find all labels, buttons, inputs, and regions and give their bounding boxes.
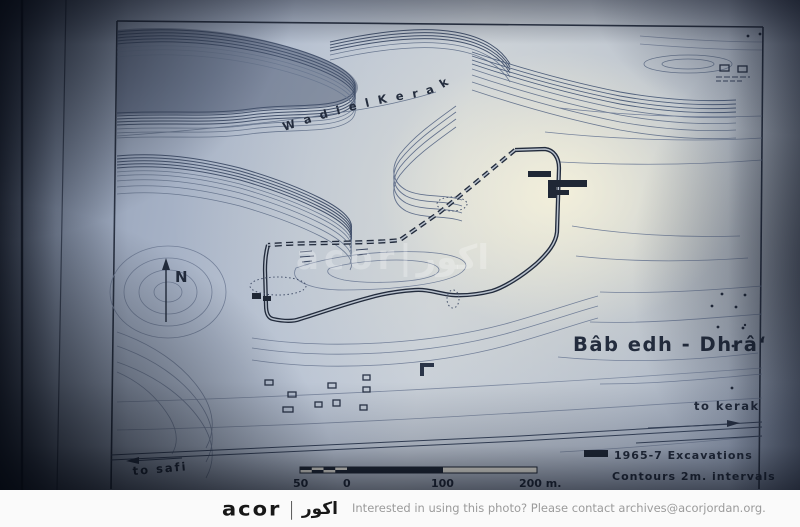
scale-label-100: 100 [431, 477, 454, 490]
map-legend: 1965-7 Excavations Contours 2m. interval… [584, 449, 776, 483]
town-wall [265, 149, 559, 321]
road-label-safi: to safi [132, 459, 188, 478]
legend-excavations-label: 1965-7 Excavations [614, 449, 753, 462]
north-arrow-head-icon [162, 258, 170, 270]
steep-slope-shading [117, 28, 358, 115]
contour-lines [110, 28, 762, 478]
scale-bar: 50 0 100 200 m. [293, 467, 561, 490]
small-dash-notes [716, 77, 750, 81]
scale-label-50: 50 [293, 477, 309, 490]
screenshot: N W a d i e l K e r a k Bâb edh - Dhrâ‘ … [0, 0, 800, 527]
legend-contours-label: Contours 2m. intervals [612, 470, 776, 483]
scale-label-0: 0 [343, 477, 351, 490]
acor-logo-divider: | [288, 498, 294, 520]
north-label: N [175, 268, 188, 286]
corner-wall-mark [420, 363, 434, 376]
acor-logo-latin: acor [222, 497, 281, 519]
excavation-marks [252, 171, 587, 301]
hachure-dashes [300, 249, 368, 262]
map-photo: N W a d i e l K e r a k Bâb edh - Dhrâ‘ … [0, 0, 800, 490]
road-arrow-right-icon [727, 420, 740, 427]
acor-logo: acor | اكور [222, 496, 338, 521]
north-arrow: N [162, 258, 188, 322]
site-title: Bâb edh - Dhrâ‘ [573, 333, 767, 356]
wall-solid [265, 149, 559, 321]
contact-caption: Interested in using this photo? Please c… [352, 501, 766, 515]
acor-logo-arabic: اكور [302, 499, 338, 519]
archive-footer: acor | اكور Interested in using this pho… [0, 490, 800, 527]
topographic-map: N W a d i e l K e r a k Bâb edh - Dhrâ‘ … [0, 0, 800, 490]
legend-excavation-swatch [584, 450, 608, 457]
scale-label-200: 200 m. [519, 477, 561, 490]
paper-folds [22, 0, 66, 490]
road-label-kerak: to kerak [694, 399, 760, 413]
